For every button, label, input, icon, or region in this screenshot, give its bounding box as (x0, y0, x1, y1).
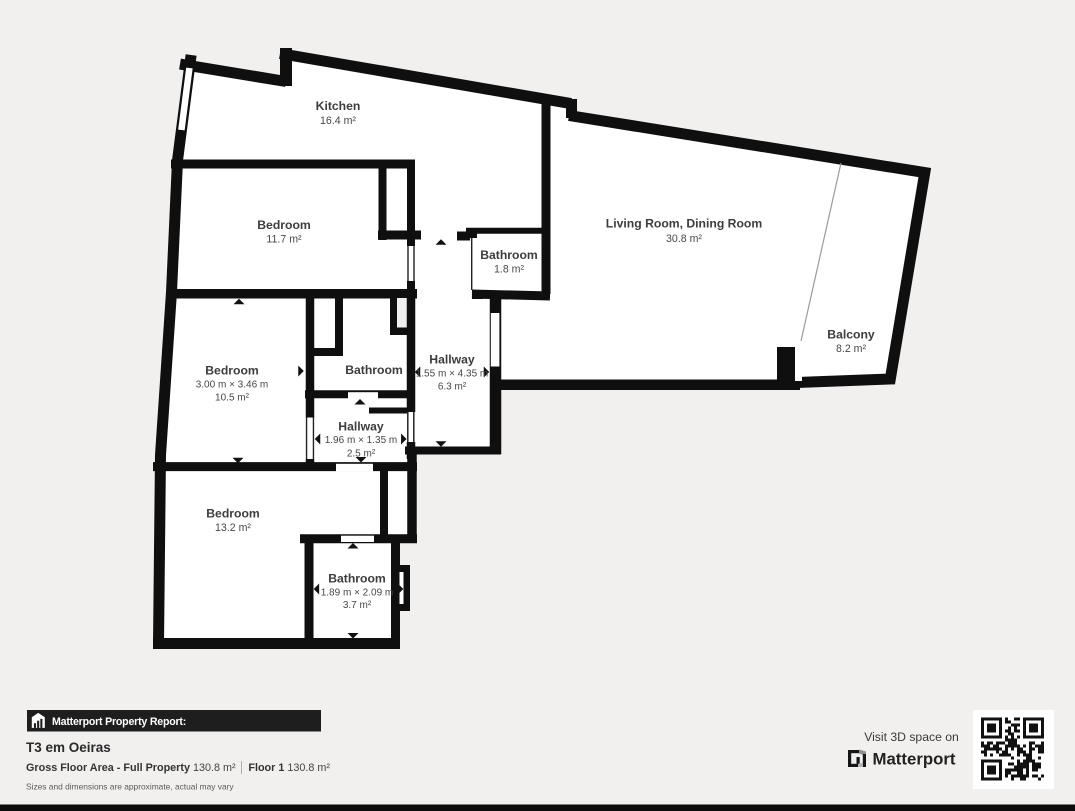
svg-text:1.55 m × 4.35 m: 1.55 m × 4.35 m (416, 369, 489, 380)
svg-text:8.2 m²: 8.2 m² (836, 343, 866, 355)
svg-text:3.7 m²: 3.7 m² (343, 600, 372, 611)
svg-text:Bathroom: Bathroom (480, 248, 538, 262)
svg-text:Bathroom: Bathroom (345, 363, 403, 377)
svg-text:Matterport: Matterport (873, 750, 956, 769)
svg-text:Gross Floor Area - Full Proper: Gross Floor Area - Full Property 130.8 m… (26, 761, 330, 775)
svg-text:30.8 m²: 30.8 m² (666, 233, 702, 245)
svg-text:Living Room, Dining Room: Living Room, Dining Room (606, 217, 763, 231)
svg-text:10.5 m²: 10.5 m² (215, 393, 250, 404)
svg-text:3.00 m × 3.46 m: 3.00 m × 3.46 m (196, 380, 269, 391)
svg-text:2.5 m²: 2.5 m² (347, 449, 376, 460)
svg-text:13.2 m²: 13.2 m² (215, 522, 251, 534)
svg-text:Balcony: Balcony (827, 328, 875, 342)
svg-text:Bathroom: Bathroom (328, 572, 386, 586)
svg-text:16.4 m²: 16.4 m² (320, 115, 356, 127)
svg-text:Hallway: Hallway (429, 353, 475, 367)
svg-text:Bedroom: Bedroom (205, 364, 259, 378)
svg-text:6.3 m²: 6.3 m² (438, 382, 467, 393)
svg-text:Kitchen: Kitchen (316, 99, 361, 113)
svg-text:1.96 m × 1.35 m: 1.96 m × 1.35 m (325, 435, 398, 446)
svg-text:Bedroom: Bedroom (206, 507, 260, 521)
svg-text:Hallway: Hallway (338, 420, 384, 434)
svg-text:Sizes and dimensions are appro: Sizes and dimensions are approximate, ac… (26, 782, 234, 792)
svg-text:T3 em Oeiras: T3 em Oeiras (26, 740, 111, 755)
svg-text:1.8 m²: 1.8 m² (494, 264, 524, 276)
svg-text:Visit 3D space on: Visit 3D space on (864, 730, 959, 744)
svg-text:Bedroom: Bedroom (257, 218, 311, 232)
svg-text:Matterport Property Report:: Matterport Property Report: (52, 716, 186, 728)
svg-text:11.7 m²: 11.7 m² (266, 234, 302, 246)
svg-text:1.89 m × 2.09 m: 1.89 m × 2.09 m (321, 588, 394, 599)
